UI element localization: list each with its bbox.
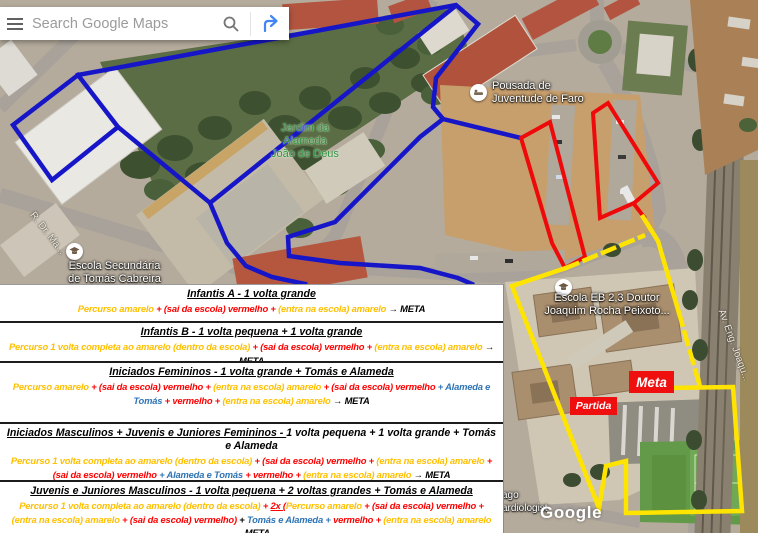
section-body: Percurso 1 volta completa ao amarelo (de…	[6, 499, 497, 533]
google-maps-app: Jardim da Alameda João de Deus Pousada d…	[0, 0, 758, 533]
magnifier-icon	[222, 15, 240, 33]
section-body: Percurso amarelo + (sai da escola) verme…	[6, 302, 497, 316]
hamburger-icon	[7, 18, 23, 20]
legend-section-infantis-b: Infantis B - 1 volta pequena + 1 volta g…	[0, 323, 503, 363]
legend-section-infantis-a: Infantis A - 1 volta grande Percurso ama…	[0, 285, 503, 323]
start-marker: Partida	[570, 397, 617, 415]
search-bar	[0, 7, 289, 40]
search-button[interactable]	[212, 7, 250, 40]
directions-button[interactable]	[251, 7, 289, 40]
section-heading: Infantis B - 1 volta pequena + 1 volta g…	[6, 326, 497, 339]
course-legend-panel: Infantis A - 1 volta grande Percurso ama…	[0, 284, 504, 533]
menu-button[interactable]	[0, 7, 30, 40]
section-heading: Iniciados Femininos - 1 volta grande + T…	[6, 366, 497, 379]
section-heading: Infantis A - 1 volta grande	[6, 288, 497, 301]
legend-section-juvenis-masculinos: Juvenis e Juniores Masculinos - 1 volta …	[0, 482, 503, 533]
school-eb-poi-icon[interactable]	[555, 279, 572, 296]
legend-section-iniciados-femininos: Iniciados Femininos - 1 volta grande + T…	[0, 363, 503, 424]
school-secundaria-poi-icon[interactable]	[66, 243, 83, 260]
hostel-poi-icon[interactable]	[470, 84, 487, 101]
directions-icon	[261, 14, 280, 33]
section-body: Percurso 1 volta completa ao amarelo (de…	[6, 340, 497, 363]
section-heading: Iniciados Masculinos + Juvenis e Juniore…	[6, 427, 497, 453]
graduation-cap-icon	[69, 246, 80, 257]
graduation-cap-icon	[558, 282, 569, 293]
finish-marker: Meta	[629, 371, 674, 393]
search-input[interactable]	[30, 15, 212, 33]
bed-icon	[473, 87, 484, 98]
section-body: Percurso amarelo + (sai da escola) verme…	[6, 380, 497, 407]
section-body: Percurso 1 volta completa ao amarelo (de…	[6, 454, 497, 481]
section-heading: Juvenis e Juniores Masculinos - 1 volta …	[6, 485, 497, 498]
legend-section-iniciados-masculinos: Iniciados Masculinos + Juvenis e Juniore…	[0, 424, 503, 482]
